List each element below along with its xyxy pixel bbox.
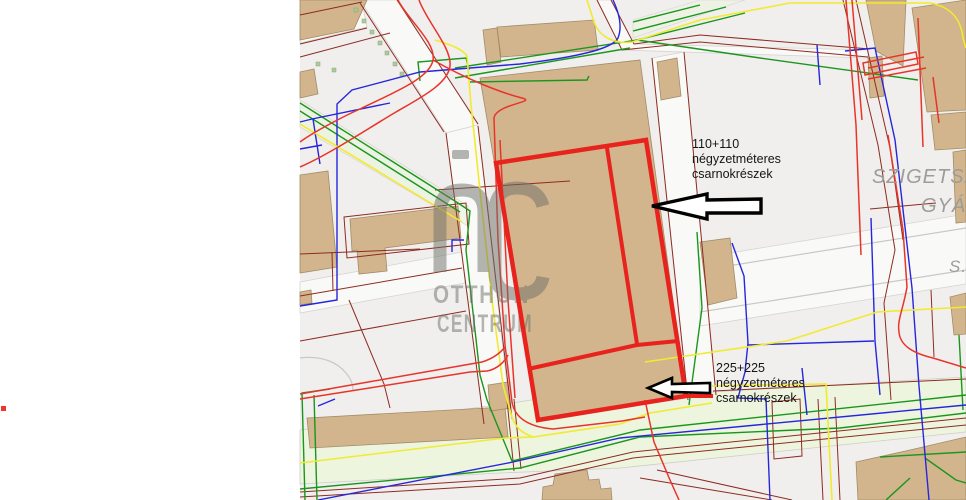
logo-chimney-icon [452, 150, 469, 159]
annotation-110-line3: csarnokrészek [692, 167, 773, 181]
map-image: OTTHON CENTRUM SZIGETSZ GYÁ S. 110+110 n… [0, 0, 966, 500]
annotation-110-line1: 110+110 [692, 137, 739, 151]
red-marker-dot [1, 406, 6, 411]
annotation-110-line2: négyzetméteres [692, 152, 781, 166]
annotation-225-line2: négyzetméteres [716, 376, 805, 390]
screenshot-page: OTTHON CENTRUM SZIGETSZ GYÁ S. 110+110 n… [0, 0, 966, 500]
street-label-s: S. [949, 257, 966, 276]
left-margin [0, 0, 300, 500]
street-label-szigetsz: SZIGETSZ [872, 166, 966, 188]
annotation-225-line1: 225+225 [716, 361, 765, 375]
street-label-gya: GYÁ [921, 194, 966, 217]
annotation-225-line3: csarnokrészek [716, 391, 797, 405]
